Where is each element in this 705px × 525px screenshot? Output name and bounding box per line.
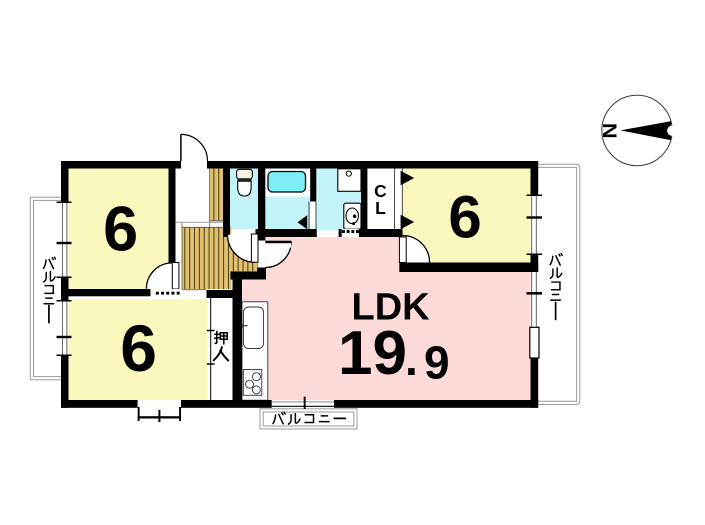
svg-text:9: 9 <box>424 337 450 389</box>
svg-text:.: . <box>405 333 418 385</box>
svg-text:L: L <box>375 198 386 218</box>
svg-text:19: 19 <box>338 319 407 388</box>
svg-text:6: 6 <box>448 183 481 250</box>
svg-text:N: N <box>599 123 620 139</box>
svg-text:6: 6 <box>103 194 138 264</box>
svg-text:6: 6 <box>120 311 157 385</box>
